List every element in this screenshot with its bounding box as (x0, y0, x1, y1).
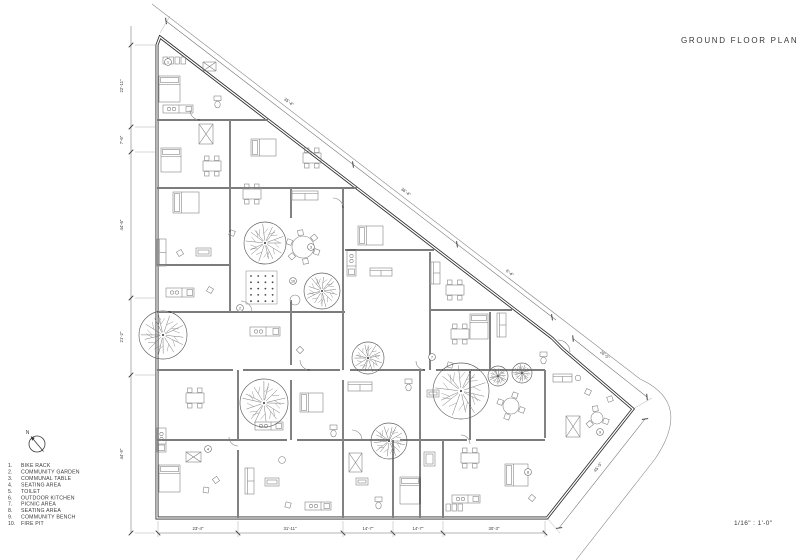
svg-text:4: 4 (207, 447, 209, 451)
north-arrow-icon: N (26, 430, 45, 452)
legend-item-label: FIRE PIT (21, 521, 45, 527)
legend-item: 4.SEATING AREA (8, 482, 61, 488)
svg-text:3: 3 (310, 245, 312, 249)
keynote-marker: 9 (597, 429, 604, 436)
legend-item-number: 2. (8, 469, 12, 475)
legend-item-label: COMMUNITY GARDEN (21, 469, 80, 475)
legend-item-number: 7. (8, 502, 12, 508)
legend-item-label: TOILET (21, 489, 41, 495)
scale-note: 1/16" : 1'-0" (734, 520, 773, 527)
legend-item: 9.COMMUNITY BENCH (8, 515, 76, 521)
legend-item-label: BIKE RACK (21, 463, 51, 469)
legend-item-number: 5. (8, 489, 12, 495)
dimension-label: 45'-5" (592, 461, 603, 473)
legend-item-number: 9. (8, 515, 12, 521)
dimension-label: 21'-2" (119, 331, 124, 342)
legend-item-label: SEATING AREA (21, 508, 61, 514)
dimension-label: 22'-11" (119, 79, 124, 92)
svg-text:1: 1 (167, 60, 169, 64)
legend-item: 3.COMMUNAL TABLE (8, 476, 72, 482)
legend-item: 1.BIKE RACK (8, 463, 51, 469)
legend-item: 8.SEATING AREA (8, 508, 61, 514)
legend-item: 6.OUTDOOR KITCHEN (8, 495, 75, 501)
legend-item: 2.COMMUNITY GARDEN (8, 469, 80, 475)
dimension-label: 14'-7" (413, 526, 424, 531)
keynote-marker: 1 (165, 59, 172, 66)
dimension-label: 23'-4" (193, 526, 204, 531)
svg-text:2: 2 (239, 306, 241, 310)
legend-item-number: 8. (8, 508, 12, 514)
legend-item-label: PICNIC AREA (21, 502, 56, 508)
legend-item-number: 10. (8, 521, 15, 527)
keynote-marker: 4 (205, 446, 212, 453)
legend-item-label: COMMUNAL TABLE (21, 476, 72, 482)
svg-text:10: 10 (291, 279, 295, 283)
floor-plan-canvas: 102738491 22'-11"7'-6"44'-6"21'-2"44'-9"… (0, 0, 800, 560)
dimension-label: 7'-6" (119, 135, 124, 144)
building-walls (157, 37, 633, 518)
legend-item-label: OUTDOOR KITCHEN (21, 495, 75, 501)
legend-list: 1.BIKE RACK2.COMMUNITY GARDEN3.COMMUNAL … (8, 463, 80, 527)
floor-plan-sheet: 102738491 22'-11"7'-6"44'-6"21'-2"44'-9"… (0, 0, 800, 560)
svg-text:9: 9 (599, 430, 601, 434)
keynote-marker: 2 (237, 305, 244, 312)
legend-item-label: SEATING AREA (21, 482, 61, 488)
keynote-marker: 3 (308, 244, 315, 251)
legend-item-label: COMMUNITY BENCH (21, 515, 76, 521)
svg-text:8: 8 (527, 470, 529, 474)
keynote-marker: 7 (429, 354, 436, 361)
dimension-label: 44'-6" (119, 219, 124, 230)
dimension-label: 44'-9" (119, 448, 124, 459)
legend-item: 7.PICNIC AREA (8, 502, 56, 508)
dimension-label: 14'-7" (363, 526, 374, 531)
dimension-label: 26'-5" (599, 349, 611, 360)
dimension-label: 31'-11" (283, 526, 296, 531)
legend-item-number: 1. (8, 463, 12, 469)
north-label: N (26, 430, 30, 436)
legend-item: 5.TOILET (8, 489, 41, 495)
legend-item-number: 6. (8, 495, 12, 501)
dimension-label: 30'-3" (489, 526, 500, 531)
svg-text:7: 7 (431, 355, 433, 359)
legend-item-number: 3. (8, 476, 12, 482)
legend-item: 10.FIRE PIT (8, 521, 45, 527)
keynote-marker: 8 (525, 469, 532, 476)
drawing-title: GROUND FLOOR PLAN (681, 36, 798, 45)
keynote-marker: 10 (290, 278, 297, 285)
legend-item-number: 4. (8, 482, 12, 488)
